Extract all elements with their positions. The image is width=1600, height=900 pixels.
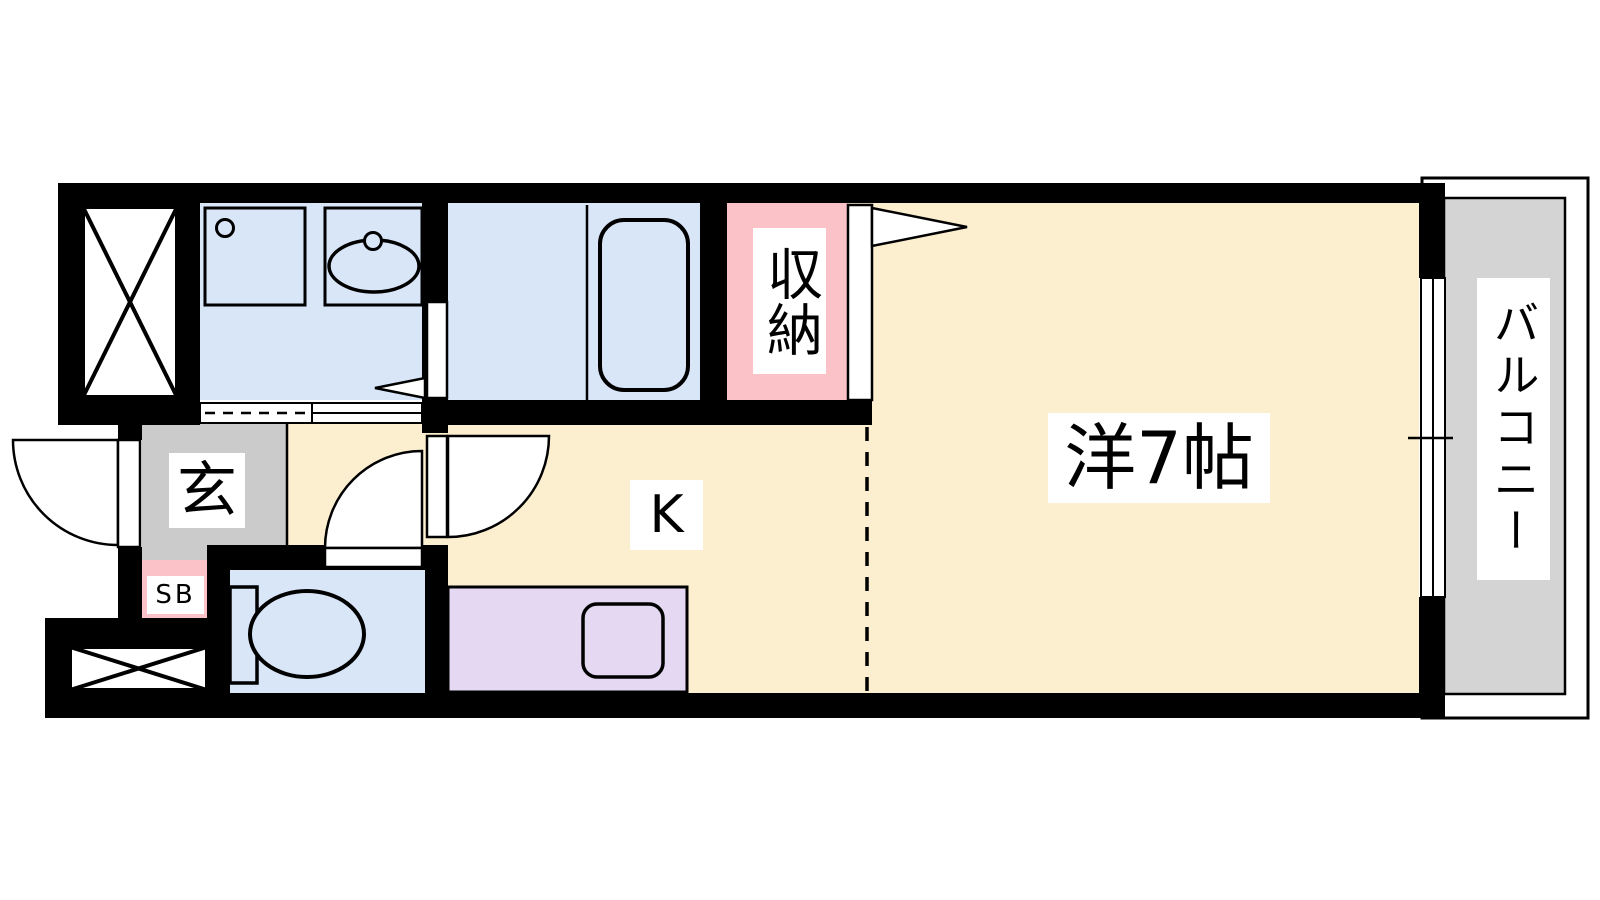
wall-top bbox=[58, 183, 1431, 203]
toilet-door-leaf bbox=[325, 548, 422, 567]
closet-label: 収納 bbox=[753, 228, 826, 374]
wall-right-upper bbox=[1419, 183, 1445, 278]
wall-under-bath-closet bbox=[422, 400, 872, 425]
bath-door-leaf bbox=[427, 302, 447, 398]
toilet-room bbox=[207, 545, 448, 718]
entrance-door-swing bbox=[13, 440, 118, 545]
pipe-space-top bbox=[83, 207, 177, 397]
shoebox-label: SB bbox=[147, 576, 204, 614]
kitchen-label: K bbox=[630, 480, 703, 550]
wall-entrance-upper bbox=[118, 424, 142, 440]
entrance-label: 玄 bbox=[169, 453, 245, 528]
pipe-space-bottom bbox=[70, 647, 207, 690]
toilet-bowl-icon bbox=[250, 591, 364, 677]
bathroom-floor bbox=[448, 203, 700, 400]
wall-entrance-lower bbox=[118, 547, 142, 622]
wall-right-lower bbox=[1419, 597, 1445, 718]
closet-door-leaf bbox=[848, 205, 872, 400]
washroom-door-leaf bbox=[427, 436, 447, 537]
washroom-sliding-door bbox=[200, 403, 422, 423]
western-room-label: 洋7帖 bbox=[1048, 413, 1270, 503]
wall-bottom bbox=[45, 693, 1445, 718]
kitchen-counter bbox=[448, 587, 687, 692]
floor-plan-drawing bbox=[0, 0, 1600, 900]
floor-plan: 洋7帖 K 玄 SB 収納 バルコニー bbox=[0, 0, 1600, 900]
wall-bath-closet bbox=[700, 183, 727, 425]
balcony-label: バルコニー bbox=[1477, 278, 1550, 580]
vanity-faucet-icon bbox=[365, 233, 382, 250]
entrance-door-leaf bbox=[118, 440, 140, 547]
